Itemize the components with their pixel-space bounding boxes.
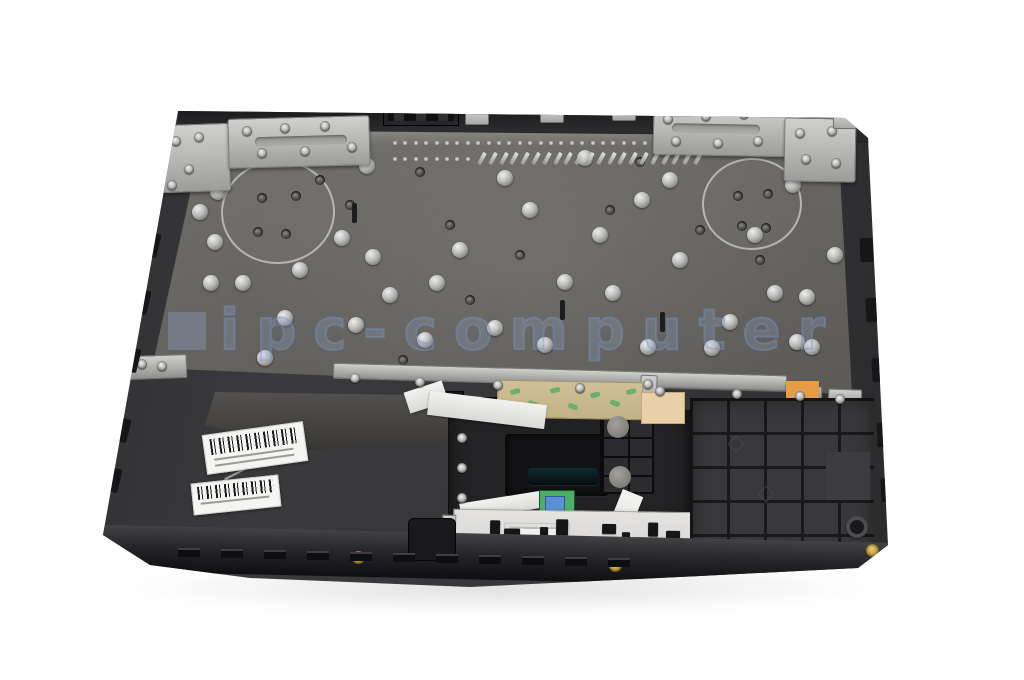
snap-clip (479, 555, 501, 564)
backlight-pin (596, 152, 606, 165)
rivet (799, 289, 815, 305)
ribbed-grid-area (690, 398, 874, 562)
screw (157, 361, 167, 371)
molded-mark (758, 486, 775, 503)
screw (493, 380, 503, 390)
backlight-pin (591, 141, 595, 145)
plate-hole (761, 223, 771, 233)
rivet (662, 172, 678, 188)
rivet (672, 252, 688, 268)
screw (795, 391, 805, 401)
backlight-pin (424, 157, 428, 161)
backlight-pin (445, 157, 449, 161)
rivet (722, 314, 738, 330)
edge-clip (104, 467, 122, 493)
plate-hole (515, 250, 525, 260)
rim-screw-tab (833, 113, 857, 129)
snap-clip (393, 553, 415, 562)
rivet (497, 170, 513, 186)
backlight-pin (393, 157, 397, 161)
backlight-pin (607, 152, 617, 165)
backlight-pin (455, 157, 459, 161)
edge-clip (113, 417, 131, 443)
rivet (207, 234, 223, 250)
rivet (334, 230, 350, 246)
plate-hole (257, 193, 267, 203)
backlight-pin (403, 157, 407, 161)
bracket-slot-right (672, 123, 760, 134)
rivet (789, 334, 805, 350)
plate-hole (465, 295, 475, 305)
backlight-pin (499, 152, 509, 165)
screw (167, 180, 177, 190)
rivet (365, 249, 381, 265)
screw (831, 158, 841, 168)
screw (350, 373, 360, 383)
plate-hole (737, 221, 747, 231)
backlight-pin (564, 152, 574, 165)
tape-marking (510, 388, 521, 395)
rivet (257, 350, 273, 366)
backlight-pin (414, 141, 418, 145)
rim-screw-tab (465, 109, 489, 125)
screw (171, 136, 181, 146)
backlight-pin (542, 152, 552, 165)
rivet (348, 317, 364, 333)
rivet (605, 285, 621, 301)
brass-insert (866, 544, 879, 557)
snap-clip (608, 558, 630, 567)
screw (663, 114, 673, 124)
backlight-pin (477, 152, 487, 165)
rivet (850, 312, 866, 328)
dot-texture-patch (826, 452, 870, 500)
backlight-pin (531, 152, 541, 165)
backlight-pin (539, 141, 543, 145)
backlight-pin (488, 152, 498, 165)
rivet (804, 339, 820, 355)
backlight-pin (549, 141, 553, 145)
plate-hole (733, 191, 743, 201)
molded-mark (728, 436, 745, 453)
plate-hole (253, 227, 263, 237)
edge-clip (876, 423, 890, 448)
barcode-icon (209, 427, 298, 455)
plate-slot (660, 312, 665, 332)
touchpad-module (505, 434, 609, 496)
backlight-pin (520, 152, 530, 165)
screw (300, 146, 310, 156)
smd-component (556, 519, 568, 535)
screw-boss (846, 516, 868, 538)
keyboard-connector (383, 103, 459, 126)
snap-clip (350, 552, 372, 561)
screw (575, 383, 585, 393)
tape-marking (590, 391, 601, 398)
smd-component (602, 524, 616, 534)
backlight-pin (393, 141, 397, 145)
backlight-pin (518, 141, 522, 145)
screw (753, 136, 763, 146)
flex-connector-blue-tape (545, 496, 565, 511)
rivet (203, 275, 219, 291)
backlight-pin (435, 157, 439, 161)
screw (457, 463, 467, 473)
plate-hole (605, 205, 615, 215)
rim-slot (650, 103, 676, 112)
rivet (452, 242, 468, 258)
plate-slot (352, 203, 357, 223)
rivet (537, 337, 553, 353)
backlight-pin (497, 141, 501, 145)
plate-hole (445, 220, 455, 230)
screw (194, 132, 204, 142)
barcode-label-1 (202, 421, 309, 475)
snap-clip (264, 550, 286, 559)
backlight-pin (414, 157, 418, 161)
backlight-pin (435, 141, 439, 145)
backlight-pin (622, 141, 626, 145)
plate-hole (291, 191, 301, 201)
backlight-pin (445, 141, 449, 145)
edge-clip (133, 289, 151, 315)
screw (242, 126, 252, 136)
plate-hole (415, 167, 425, 177)
smd-component (490, 520, 500, 534)
plate-hole (398, 355, 408, 365)
rivet (522, 202, 538, 218)
screw (457, 433, 467, 443)
screw (415, 377, 425, 387)
rim-screw-tab (612, 105, 636, 121)
backlight-pin (643, 141, 647, 145)
tape-marking (626, 388, 637, 395)
grid-pad (609, 466, 631, 488)
rivet (277, 310, 293, 326)
barcode-label-2 (191, 474, 282, 515)
backlight-pin (601, 141, 605, 145)
screw (184, 164, 194, 174)
screw (801, 154, 811, 164)
grid-pad (607, 416, 629, 438)
backlight-pin (466, 157, 470, 161)
rivet (704, 340, 720, 356)
adhesive-tape-2 (641, 392, 685, 424)
screw (643, 379, 653, 389)
backlight-pin (487, 141, 491, 145)
rivet (382, 287, 398, 303)
rivet (634, 192, 650, 208)
speaker-ring-left (218, 157, 337, 267)
touchpad-gloss (528, 468, 598, 485)
snap-clip (307, 551, 329, 560)
screw (655, 386, 665, 396)
rivet (557, 274, 573, 290)
rivet (640, 339, 656, 355)
screw (732, 389, 742, 399)
plate-hole (315, 175, 325, 185)
backlight-pin (570, 141, 574, 145)
tape-marking (609, 399, 620, 407)
rivet (767, 285, 783, 301)
backlight-pin (618, 152, 628, 165)
screw (739, 109, 749, 119)
rivet (417, 332, 433, 348)
screw (713, 138, 723, 148)
backlight-pin (466, 141, 470, 145)
plate-hole (763, 189, 773, 199)
screw (457, 493, 467, 503)
edge-clip (880, 478, 894, 503)
edge-clip (143, 232, 161, 258)
snap-clip (178, 548, 200, 557)
rivet (235, 275, 251, 291)
plate-hole (755, 255, 765, 265)
rivet (192, 204, 208, 220)
rivet (292, 262, 308, 278)
screw (795, 128, 805, 138)
plate-hole (695, 225, 705, 235)
screw (347, 142, 357, 152)
tape-marking (550, 387, 561, 394)
screw (701, 111, 711, 121)
edge-clip (871, 358, 885, 383)
smd-component (648, 522, 658, 536)
rivet (429, 275, 445, 291)
rivet (487, 320, 503, 336)
screw (835, 394, 845, 404)
backlight-pin (510, 152, 520, 165)
snap-clip (436, 554, 458, 563)
edge-clip (859, 238, 873, 263)
screw (671, 136, 681, 146)
plate-hole (281, 229, 291, 239)
rivet (827, 247, 843, 263)
product-photo: ipc-computer (0, 0, 1024, 680)
backlight-pin (553, 152, 563, 165)
rim-screw-tab (540, 107, 564, 123)
rivet (592, 227, 608, 243)
screw (257, 148, 267, 158)
rim-slot (582, 104, 608, 113)
snap-clip (565, 557, 587, 566)
tape-marking (567, 402, 578, 410)
screw (320, 121, 330, 131)
plate-slot (560, 300, 565, 320)
screw (280, 123, 290, 133)
edge-clip (865, 298, 879, 323)
snap-clip (221, 549, 243, 558)
snap-clip (522, 556, 544, 565)
